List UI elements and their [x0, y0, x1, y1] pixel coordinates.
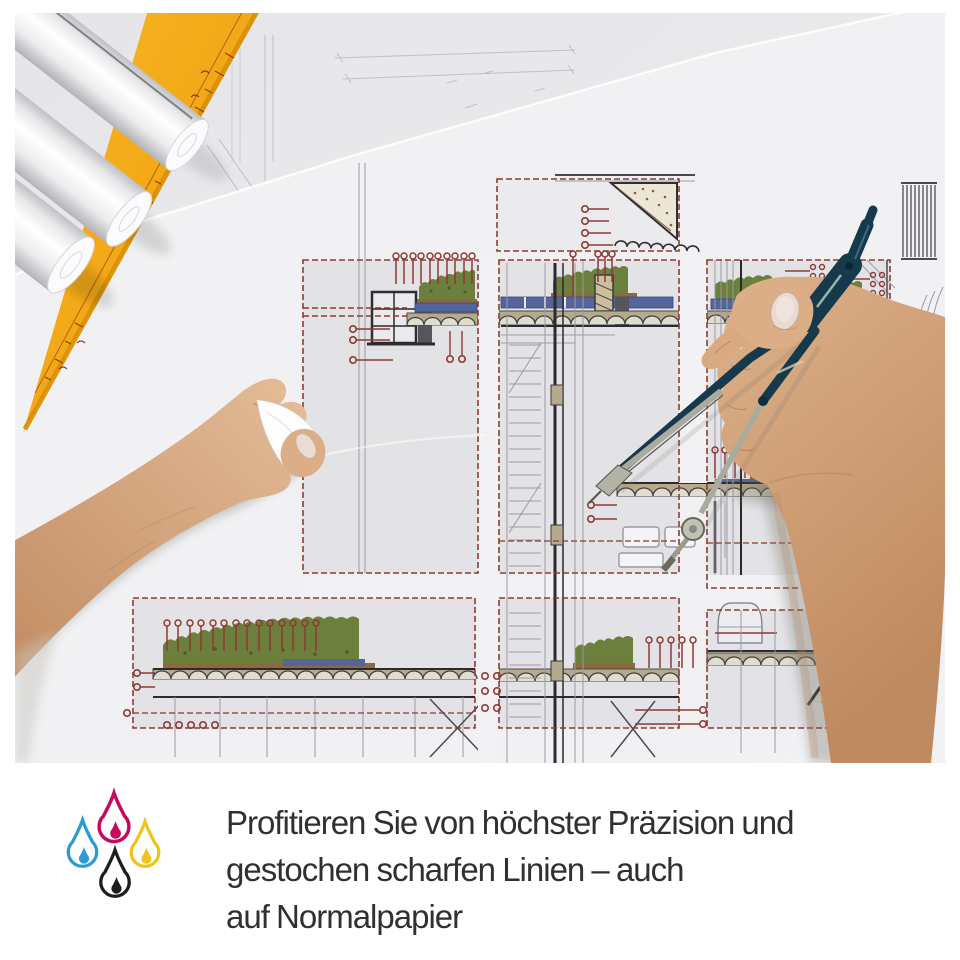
yellow-drop-icon [131, 821, 159, 866]
caption-line-2: gestochen scharfen Linien – auch [226, 846, 916, 893]
hp-marketing-banner: Profitieren Sie von höchster Präzision u… [0, 0, 960, 960]
cmyk-ink-drops-icon [44, 780, 184, 925]
blueprint-photo [15, 13, 945, 763]
armchair-section [718, 603, 762, 643]
cyan-drop-icon [68, 820, 96, 866]
caption-line-1: Profitieren Sie von höchster Präzision u… [226, 799, 916, 846]
caption-line-3: auf Normalpapier [226, 893, 916, 940]
magenta-drop-icon [99, 793, 129, 842]
black-drop-icon [101, 850, 129, 896]
caption-text: Profitieren Sie von höchster Präzision u… [226, 799, 916, 940]
